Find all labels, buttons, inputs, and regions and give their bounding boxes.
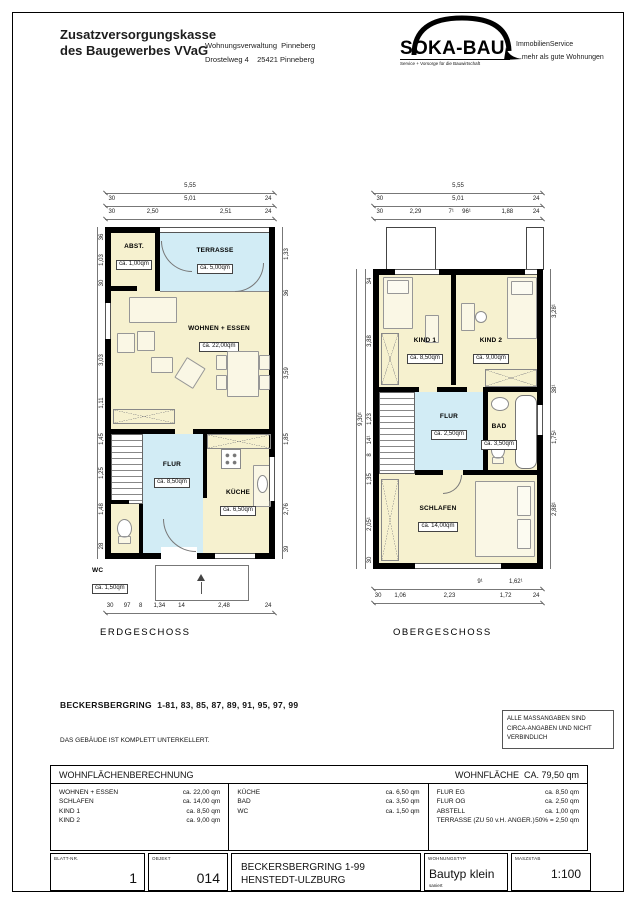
- disclaimer-line3: VERBINDLICH: [507, 734, 609, 744]
- window: [537, 405, 543, 435]
- area-table: WOHNFLÄCHENBERECHNUNG WOHNFLÄCHE CA. 79,…: [50, 765, 588, 851]
- pillow: [517, 486, 531, 516]
- dining-table: [227, 351, 259, 397]
- title-box-massstab: MASZSTAB 1:100: [511, 853, 591, 891]
- dim-label: 3,59: [284, 366, 290, 380]
- room-label-flur: FLUR ca. 8,50qm: [143, 461, 201, 490]
- dim-label: 1,33: [284, 247, 290, 261]
- dim-label: 5,55: [451, 183, 465, 189]
- area-row: WCca. 1,50 qm: [229, 805, 427, 815]
- area-room-label: ABSTELL: [437, 808, 466, 815]
- kitchen-counter: [207, 434, 271, 449]
- room-name: KIND 2: [465, 337, 517, 345]
- wardrobe: [381, 333, 399, 385]
- dim-label: 1,23: [367, 412, 373, 426]
- dim-label: 1,48: [99, 502, 105, 516]
- room-label-wc: WC ca. 1,50qm: [92, 567, 142, 596]
- room-name: KÜCHE: [209, 489, 267, 497]
- area-room-value: ca. 14,00 qm: [183, 798, 221, 805]
- dim-chain: 302,297¹96¹1,8824: [373, 211, 543, 220]
- dining-chair: [259, 355, 270, 370]
- dim-label: 5,01: [451, 196, 465, 202]
- dim-label: 24: [532, 209, 541, 215]
- organization-line1: Zusatzversorgungskasse: [60, 27, 216, 43]
- wall-segment: [451, 275, 456, 385]
- dim-label: 24: [264, 209, 273, 215]
- dim-label: 5,01: [183, 196, 197, 202]
- area-row: FLUR EGca. 8,50 qm: [429, 786, 587, 796]
- area-room-label: SCHLAFEN: [59, 798, 94, 805]
- room-name: KIND 1: [401, 337, 449, 345]
- dining-chair: [259, 375, 270, 390]
- dim-label: 30: [374, 593, 383, 599]
- dim-label: 2,29: [409, 209, 423, 215]
- dim-label: 14¹: [367, 435, 373, 446]
- sofa: [129, 297, 177, 323]
- room-area: ca. 14,00qm: [418, 522, 457, 532]
- window: [525, 269, 537, 275]
- wardrobe: [381, 479, 399, 561]
- dim-label: 1,06: [393, 593, 407, 599]
- dim-label: 2,50: [146, 209, 160, 215]
- dim-chain: 309781,34142,4824: [105, 605, 275, 614]
- dim-label: 8: [138, 603, 143, 609]
- lounge-chair: [174, 357, 205, 389]
- bath-sink: [491, 397, 509, 411]
- room-area: ca. 8,50qm: [407, 354, 443, 364]
- room-area: ca. 1,00qm: [116, 260, 152, 270]
- area-row: KÜCHEca. 6,50 qm: [229, 786, 427, 796]
- area-room-value: ca. 6,50 qm: [386, 789, 420, 796]
- area-room-value: ca. 8,50 qm: [545, 789, 579, 796]
- dim-chain-vertical: 361,03303,031,111,451,251,4828: [97, 227, 106, 559]
- dim-label: 14: [177, 603, 186, 609]
- dim-label: 36: [284, 289, 290, 298]
- dim-label: 96¹: [461, 209, 472, 215]
- area-room-value: ca. 1,00 qm: [545, 808, 579, 815]
- pillow: [517, 519, 531, 549]
- room-label-flur-og: FLUR ca. 2,50qm: [419, 413, 479, 442]
- blatt-label: BLATT-NR.: [54, 856, 78, 861]
- area-table-title: WOHNFLÄCHENBERECHNUNG: [59, 770, 194, 780]
- wall-segment: [463, 470, 537, 475]
- dim-label: 1,72: [499, 593, 513, 599]
- dim-chain-vertical: 343,881,2314¹81,352,05¹30: [365, 269, 374, 569]
- service-line1: ImmobilienService: [516, 38, 604, 51]
- dim-chain: 305,0124: [373, 198, 543, 207]
- dim-chain-vertical: 9,30¹: [356, 269, 365, 569]
- area-row: KIND 1ca. 8,50 qm: [51, 805, 228, 815]
- organization-name: Zusatzversorgungskasse des Baugewerbes V…: [60, 27, 216, 58]
- dim-label: 1,45: [99, 433, 105, 447]
- project-line2: HENSTEDT-ULZBURG: [241, 874, 365, 887]
- dim-chain-vertical: 3,28¹38¹1,75¹2,88¹: [550, 269, 559, 569]
- department-address: Wohnungsverwaltung Pinneberg Drostelweg …: [205, 39, 315, 66]
- pillow: [387, 280, 409, 294]
- dim-label: 34: [367, 277, 373, 286]
- stairs: [379, 392, 415, 474]
- dim-label: 3,28¹: [552, 303, 558, 319]
- title-block: BLATT-NR. 1 OBJEKT 014 BECKERSBERGRING 1…: [50, 853, 591, 891]
- toilet-tank: [492, 457, 504, 464]
- dim-label: 1,11: [99, 396, 105, 409]
- room-label-bad: BAD ca. 3,50qm: [477, 423, 521, 452]
- dim-chain: 5,55: [373, 185, 543, 194]
- armchair: [117, 333, 135, 353]
- dim-label: 2,05¹: [367, 516, 373, 532]
- room-name: FLUR: [143, 461, 201, 469]
- dim-label: 30: [375, 209, 384, 215]
- chair: [475, 311, 487, 323]
- room-area: ca. 6,50qm: [220, 506, 256, 516]
- dim-label: 30: [367, 556, 373, 565]
- area-room-value: ca. 2,50 qm: [545, 798, 579, 805]
- dim-label: 28: [99, 541, 105, 550]
- area-row: SCHLAFENca. 14,00 qm: [51, 796, 228, 806]
- dim-label: 24: [532, 196, 541, 202]
- area-room-label: KIND 1: [59, 808, 80, 815]
- room-area: ca. 3,50qm: [481, 440, 517, 450]
- dim-chain: 5,55: [105, 185, 275, 194]
- dim-label: 2,51: [219, 209, 233, 215]
- dim-chain: 302,502,5124: [105, 211, 275, 220]
- dim-label: 1,03: [99, 253, 105, 267]
- label-erdgeschoss: ERDGESCHOSS: [100, 627, 190, 638]
- entrance-porch: [155, 565, 249, 601]
- area-room-value: ca. 22,00 qm: [183, 789, 221, 796]
- dim-label: 1,88: [500, 209, 514, 215]
- department-line2: Drostelweg 4 25421 Pinneberg: [205, 53, 315, 67]
- area-room-value: ca. 3,50 qm: [386, 798, 420, 805]
- dim-label: 24: [264, 196, 273, 202]
- service-claim: ImmobilienService ...mehr als gute Wohnu…: [516, 38, 604, 65]
- disclaimer-line2: CIRCA-ANGABEN UND NICHT: [507, 725, 609, 735]
- area-column-3: FLUR EGca. 8,50 qmFLUR OGca. 2,50 qmABST…: [428, 784, 587, 850]
- label-obergeschoss: OBERGESCHOSS: [393, 627, 492, 638]
- sideboard: [113, 409, 175, 424]
- dim-label: 24: [264, 603, 273, 609]
- area-column-2: KÜCHEca. 6,50 qmBADca. 3,50 qmWCca. 1,50…: [228, 784, 427, 850]
- window: [215, 553, 255, 559]
- area-table-header: WOHNFLÄCHENBERECHNUNG WOHNFLÄCHE CA. 79,…: [51, 766, 587, 784]
- wall-segment: [111, 286, 137, 291]
- massstab-value: 1:100: [551, 867, 581, 881]
- organization-line2: des Baugewerbes VVaG: [60, 43, 216, 59]
- area-row: FLUR OGca. 2,50 qm: [429, 796, 587, 806]
- title-box-blattnr: BLATT-NR. 1: [50, 853, 145, 891]
- disclaimer-box: ALLE MASSANGABEN SIND CIRCA-ANGABEN UND …: [502, 710, 614, 749]
- wohnungstyp-label: WOHNUNGSTYP: [428, 856, 466, 861]
- plan-outline-eg: ABST. ca. 1,00qm TERRASSE ca. 5,00qm WOH…: [105, 227, 275, 559]
- dim-label: 9¹: [476, 579, 483, 585]
- dim-label: 3,88: [367, 334, 373, 348]
- dim-label: 24: [532, 593, 541, 599]
- room-name: SCHLAFEN: [403, 505, 473, 513]
- dim-label: 9,30¹: [358, 411, 364, 427]
- area-room-label: TERRASSE (ZU 50 v.H. ANGER.): [437, 817, 535, 824]
- objekt-value: 014: [197, 870, 220, 886]
- area-room-value: 50% = 2,50 qm: [535, 817, 579, 824]
- area-room-value: ca. 1,50 qm: [386, 808, 420, 815]
- room-label-schlafen: SCHLAFEN ca. 14,00qm: [403, 505, 473, 534]
- area-table-total: WOHNFLÄCHE CA. 79,50 qm: [455, 770, 579, 780]
- wall-segment: [139, 504, 143, 553]
- room-area: ca. 9,00qm: [473, 354, 509, 364]
- dim-label: 1,62¹: [508, 579, 524, 585]
- area-room-value: ca. 8,50 qm: [186, 808, 220, 815]
- dim-label: 30: [107, 209, 116, 215]
- dim-label: 39: [284, 545, 290, 554]
- dormer: [386, 227, 436, 270]
- room-area: ca. 2,50qm: [431, 430, 467, 440]
- room-name: ABST.: [111, 243, 157, 251]
- armchair: [137, 331, 155, 351]
- area-row: BADca. 3,50 qm: [229, 796, 427, 806]
- area-column-1: WOHNEN + ESSENca. 22,00 qmSCHLAFENca. 14…: [51, 784, 228, 850]
- area-row: ABSTELLca. 1,00 qm: [429, 805, 587, 815]
- dim-label: 3,03: [99, 353, 105, 367]
- wohnungstyp-value: Bautyp klein: [429, 867, 494, 881]
- room-label-abst: ABST. ca. 1,00qm: [111, 243, 157, 272]
- area-room-label: KÜCHE: [237, 789, 260, 796]
- department-line1: Wohnungsverwaltung Pinneberg: [205, 39, 315, 53]
- room-name: WOHNEN + ESSEN: [169, 325, 269, 333]
- room-label-terrasse: TERRASSE ca. 5,00qm: [173, 247, 257, 276]
- dim-label: 36: [99, 233, 105, 242]
- address-line: BECKERSBERGRING 1-81, 83, 85, 87, 89, 91…: [60, 700, 298, 710]
- dim-label: 2,76: [284, 502, 290, 516]
- dim-label: 5,55: [183, 183, 197, 189]
- area-room-label: WC: [237, 808, 248, 815]
- dormer: [526, 227, 544, 270]
- dim-label: 38¹: [552, 384, 558, 395]
- room-name: FLUR: [419, 413, 479, 421]
- area-row: TERRASSE (ZU 50 v.H. ANGER.)50% = 2,50 q…: [429, 815, 587, 825]
- area-room-label: BAD: [237, 798, 250, 805]
- area-room-label: WOHNEN + ESSEN: [59, 789, 118, 796]
- logo-wordmark: SOKA-BAU: [400, 38, 505, 60]
- room-label-wohnen: WOHNEN + ESSEN ca. 22,00qm: [169, 325, 269, 354]
- area-room-label: KIND 2: [59, 817, 80, 824]
- area-room-label: FLUR OG: [437, 798, 466, 805]
- closet: [485, 369, 537, 387]
- massstab-label: MASZSTAB: [515, 856, 541, 861]
- dim-chain-vertical: 1,33363,591,852,7639: [282, 227, 291, 559]
- door-arc: [443, 475, 462, 494]
- desk: [461, 303, 475, 331]
- title-box-wohnungstyp: WOHNUNGSTYP Bautyp klein saniert: [424, 853, 508, 891]
- area-room-label: FLUR EG: [437, 789, 465, 796]
- room-area: ca. 8,50qm: [154, 478, 190, 488]
- dim-chain: 301,062,231,7224: [373, 595, 543, 604]
- area-table-body: WOHNEN + ESSENca. 22,00 qmSCHLAFENca. 14…: [51, 784, 587, 850]
- entry-arrow-icon: [197, 574, 205, 581]
- area-row: WOHNEN + ESSENca. 22,00 qm: [51, 786, 228, 796]
- dim-label: 30: [107, 196, 116, 202]
- wohnungstyp-sub: saniert: [429, 883, 443, 888]
- dim-label: 2,23: [443, 593, 457, 599]
- room-label-kind2: KIND 2 ca. 9,00qm: [465, 337, 517, 366]
- dim-label: 30: [106, 603, 115, 609]
- area-room-value: ca. 9,00 qm: [186, 817, 220, 824]
- area-row: KIND 2ca. 9,00 qm: [51, 815, 228, 825]
- plan-outline-og: KIND 1 ca. 8,50qm KIND 2 ca. 9,00qm FLUR…: [373, 269, 543, 569]
- dim-label: 2,48: [217, 603, 231, 609]
- dim-label: 30: [99, 279, 105, 288]
- stove: [221, 449, 241, 469]
- project-line1: BECKERSBERGRING 1-99: [241, 861, 365, 874]
- basement-note: DAS GEBÄUDE IST KOMPLETT UNTERKELLERT.: [60, 737, 210, 744]
- dim-chain: 9¹1,62¹: [373, 581, 543, 590]
- dining-chair: [216, 375, 227, 390]
- dim-label: 7¹: [448, 209, 455, 215]
- dim-label: 8: [367, 452, 373, 457]
- entry-arrow-stem: [201, 582, 202, 594]
- logo-tagline: Service + Vorsorge für die Bauwirtschaft: [400, 59, 510, 66]
- wall-segment: [111, 500, 129, 504]
- dim-label: 97: [123, 603, 132, 609]
- terrace-railing: [160, 227, 269, 233]
- window: [415, 563, 501, 569]
- floorplan-obergeschoss: 5,55 305,0124 302,297¹96¹1,8824 KIND 1 c…: [358, 183, 568, 651]
- room-area: ca. 5,00qm: [197, 264, 233, 274]
- blatt-value: 1: [129, 870, 137, 886]
- dim-label: 30: [375, 196, 384, 202]
- wall-segment: [415, 470, 443, 475]
- dim-label: 1,34: [153, 603, 167, 609]
- project-name: BECKERSBERGRING 1-99 HENSTEDT-ULZBURG: [241, 861, 365, 887]
- pillow: [511, 281, 533, 295]
- room-name: BAD: [477, 423, 521, 431]
- room-name: WC: [92, 567, 142, 575]
- wall-segment: [483, 387, 537, 392]
- objekt-label: OBJEKT: [152, 856, 171, 861]
- floorplan-sheet: { "header": { "org": ["Zusatzversorgungs…: [0, 0, 635, 900]
- floorplan-erdgeschoss: 5,55 305,0124 302,502,5124 ABST. ca. 1,0…: [90, 183, 295, 651]
- window: [269, 457, 275, 501]
- dim-label: 2,88¹: [552, 501, 558, 517]
- room-area: ca. 1,50qm: [92, 584, 128, 594]
- coffee-table: [151, 357, 173, 373]
- dim-label: 1,25: [99, 466, 105, 480]
- dim-chain: 305,0124: [105, 198, 275, 207]
- dim-label: 1,85: [284, 433, 290, 447]
- title-box-project: BECKERSBERGRING 1-99 HENSTEDT-ULZBURG: [231, 853, 421, 891]
- toilet-tank: [118, 536, 131, 544]
- dining-chair: [216, 355, 227, 370]
- service-line2: ...mehr als gute Wohnungen: [516, 51, 604, 64]
- title-box-objekt: OBJEKT 014: [148, 853, 228, 891]
- room-label-kueche: KÜCHE ca. 6,50qm: [209, 489, 267, 518]
- dim-label: 1,75¹: [552, 429, 558, 445]
- room-name: TERRASSE: [173, 247, 257, 255]
- stairs: [111, 434, 143, 504]
- dim-label: 1,35: [367, 472, 373, 486]
- window: [395, 269, 439, 275]
- room-label-kind1: KIND 1 ca. 8,50qm: [401, 337, 449, 366]
- disclaimer-line1: ALLE MASSANGABEN SIND: [507, 715, 609, 725]
